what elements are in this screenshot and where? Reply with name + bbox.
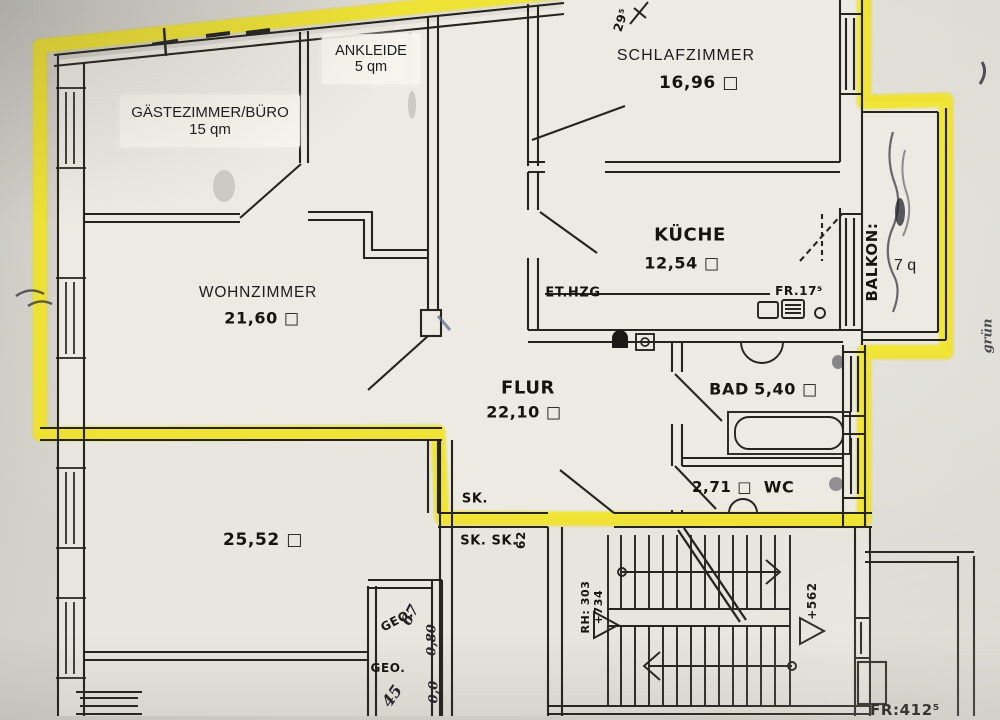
room-area: 15 qm — [189, 121, 231, 138]
room-label-balkon: BALKON: — [863, 222, 881, 301]
annotation-sk-double: SK. SK. — [460, 534, 517, 549]
handwriting-080: 0,80 — [425, 624, 440, 656]
room-label-kueche: KÜCHE — [654, 225, 726, 246]
room-name: ANKLEIDE — [335, 43, 407, 59]
annotation-geo-2: GEO. — [371, 661, 406, 675]
room-area-wohnzimmer: 21,60 □ — [224, 309, 300, 328]
floorplan-scan: GÄSTEZIMMER/BÜRO 15 qm ANKLEIDE 5 qm SCH… — [0, 0, 1000, 720]
annotation-fr-kueche: FR.17⁵ — [775, 284, 823, 298]
room-label-wohnzimmer: WOHNZIMMER — [199, 284, 317, 302]
room-area-flur: 22,10 □ — [486, 403, 562, 422]
handwriting-00: 0,0 — [427, 681, 442, 704]
room-name: GÄSTEZIMMER/BÜRO — [131, 104, 289, 121]
annotation-stair-level-562: +562 — [805, 582, 819, 620]
room-label-ankleide: ANKLEIDE 5 qm — [322, 34, 420, 84]
room-area: 5 qm — [355, 59, 387, 75]
annotation-stair-level-734: RH: 303 +734 — [579, 580, 605, 633]
annotation-et-hzg: ET.HZG — [545, 286, 600, 301]
room-area-untere-zimmer: 25,52 □ — [223, 530, 303, 550]
room-area-wc: 2,71 □ — [692, 478, 752, 496]
room-label-bad: BAD — [709, 380, 749, 399]
room-area-bad: 5,40 □ — [754, 380, 818, 399]
room-area-schlafzimmer: 16,96 □ — [659, 73, 739, 93]
room-area-kueche: 12,54 □ — [644, 254, 720, 273]
room-area-balkon: 7 q — [894, 257, 916, 275]
room-label-gaestezimmer: GÄSTEZIMMER/BÜRO 15 qm — [120, 95, 300, 147]
room-label-schlafzimmer: SCHLAFZIMMER — [617, 47, 755, 65]
room-label-flur: FLUR — [501, 378, 555, 399]
annotation-sk-top: SK. — [462, 492, 488, 507]
annotation-dim-62: 62 — [514, 531, 528, 549]
annotation-fr-bottom: FR:412⁵ — [870, 701, 940, 719]
handwriting-gruen: grün — [981, 319, 996, 354]
room-label-wc: WC — [764, 478, 795, 497]
